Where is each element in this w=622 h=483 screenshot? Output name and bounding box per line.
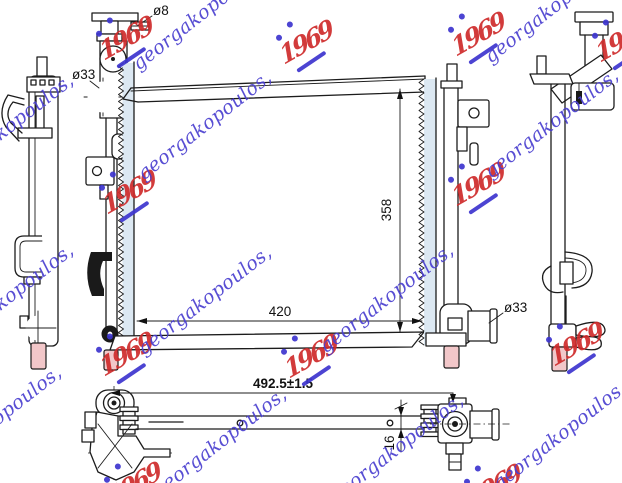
bottom-tank-edge — [110, 332, 424, 350]
drain-plug — [104, 350, 118, 370]
radiator-technical-drawing: ø8 ø33 358 420 ø33 492.5±1.5 16 1969 196… — [0, 0, 622, 483]
fin-strip-left — [123, 63, 135, 339]
dim-core-width: 420 — [269, 304, 292, 319]
drain-plug — [31, 343, 46, 369]
top-pin — [37, 57, 47, 77]
hose-barb-left — [120, 407, 138, 434]
drain-plug — [552, 347, 567, 371]
spring-clip — [87, 252, 112, 296]
bottom-foot — [426, 333, 466, 346]
outlet-pipe — [468, 311, 492, 341]
dim-overall-width: 492.5±1.5 — [253, 376, 313, 391]
bracket-shelf — [18, 128, 52, 138]
dim-filler-pipe: ø8 — [153, 3, 169, 18]
left-side-view — [2, 57, 60, 369]
drain-valve — [549, 324, 576, 347]
dim-outlet: ø33 — [504, 300, 527, 315]
fin-strip-right — [424, 79, 436, 345]
drain-plug — [444, 346, 459, 368]
right-side-view — [530, 12, 614, 371]
inlet-port-ring — [88, 82, 119, 113]
bottom-view — [82, 386, 512, 481]
filler-flange — [92, 13, 138, 21]
fin-teeth-right — [419, 79, 424, 345]
dim-core-height: 358 — [379, 199, 394, 222]
drawing-canvas: ø8 ø33 358 420 ø33 492.5±1.5 16 — [0, 0, 622, 483]
outlet-stub-bottom — [470, 411, 493, 438]
hose-barb-right — [421, 405, 439, 437]
dim-inlet: ø33 — [72, 67, 95, 82]
top-tank-edge — [131, 76, 425, 88]
mid-bracket — [15, 236, 42, 277]
filler-cap — [575, 12, 613, 22]
dimensions: ø8 ø33 358 420 ø33 492.5±1.5 16 — [72, 3, 527, 452]
top-pin — [447, 64, 457, 83]
top-bracket — [530, 74, 573, 84]
dim-core-depth: 16 — [382, 435, 397, 450]
bracket-post — [36, 96, 44, 130]
